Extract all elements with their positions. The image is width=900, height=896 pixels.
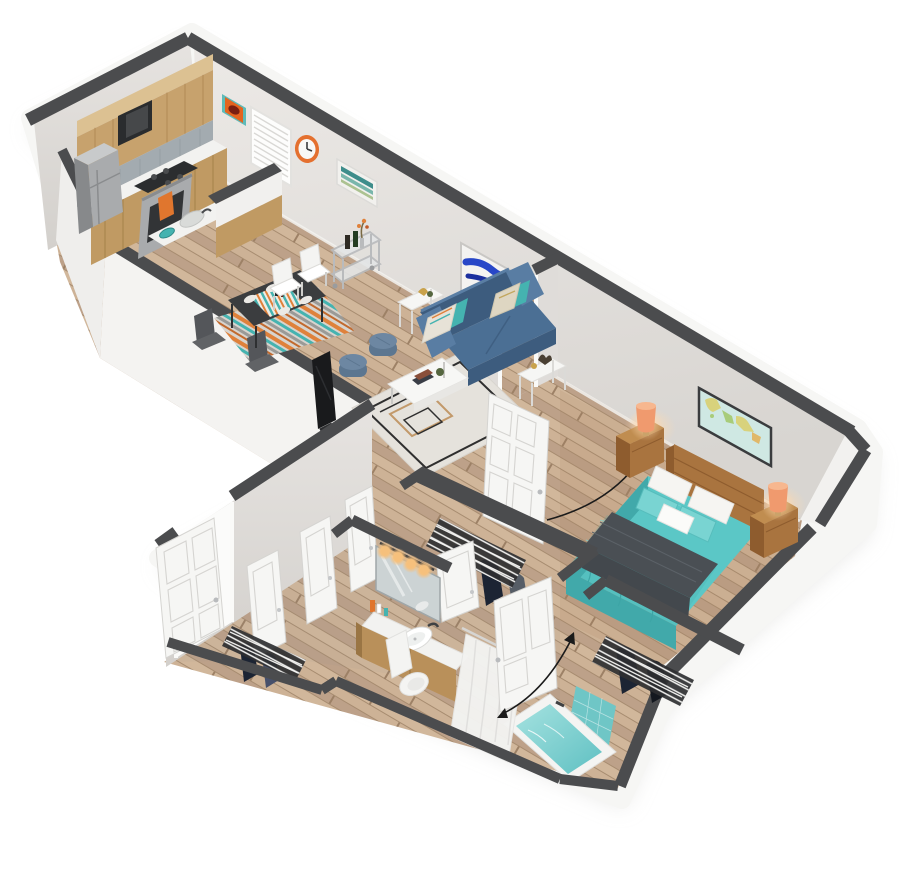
- door-knob: [538, 490, 543, 495]
- pouf: [369, 333, 397, 356]
- table-plant: [436, 368, 444, 376]
- floorplan-canvas: [0, 0, 900, 896]
- door-knob: [496, 658, 501, 663]
- closet-door: [345, 486, 378, 592]
- closet-door: [300, 516, 337, 624]
- closet-door: [436, 541, 479, 622]
- door-knob: [214, 598, 219, 603]
- floorplan-render: [0, 0, 900, 896]
- pouf: [339, 354, 367, 377]
